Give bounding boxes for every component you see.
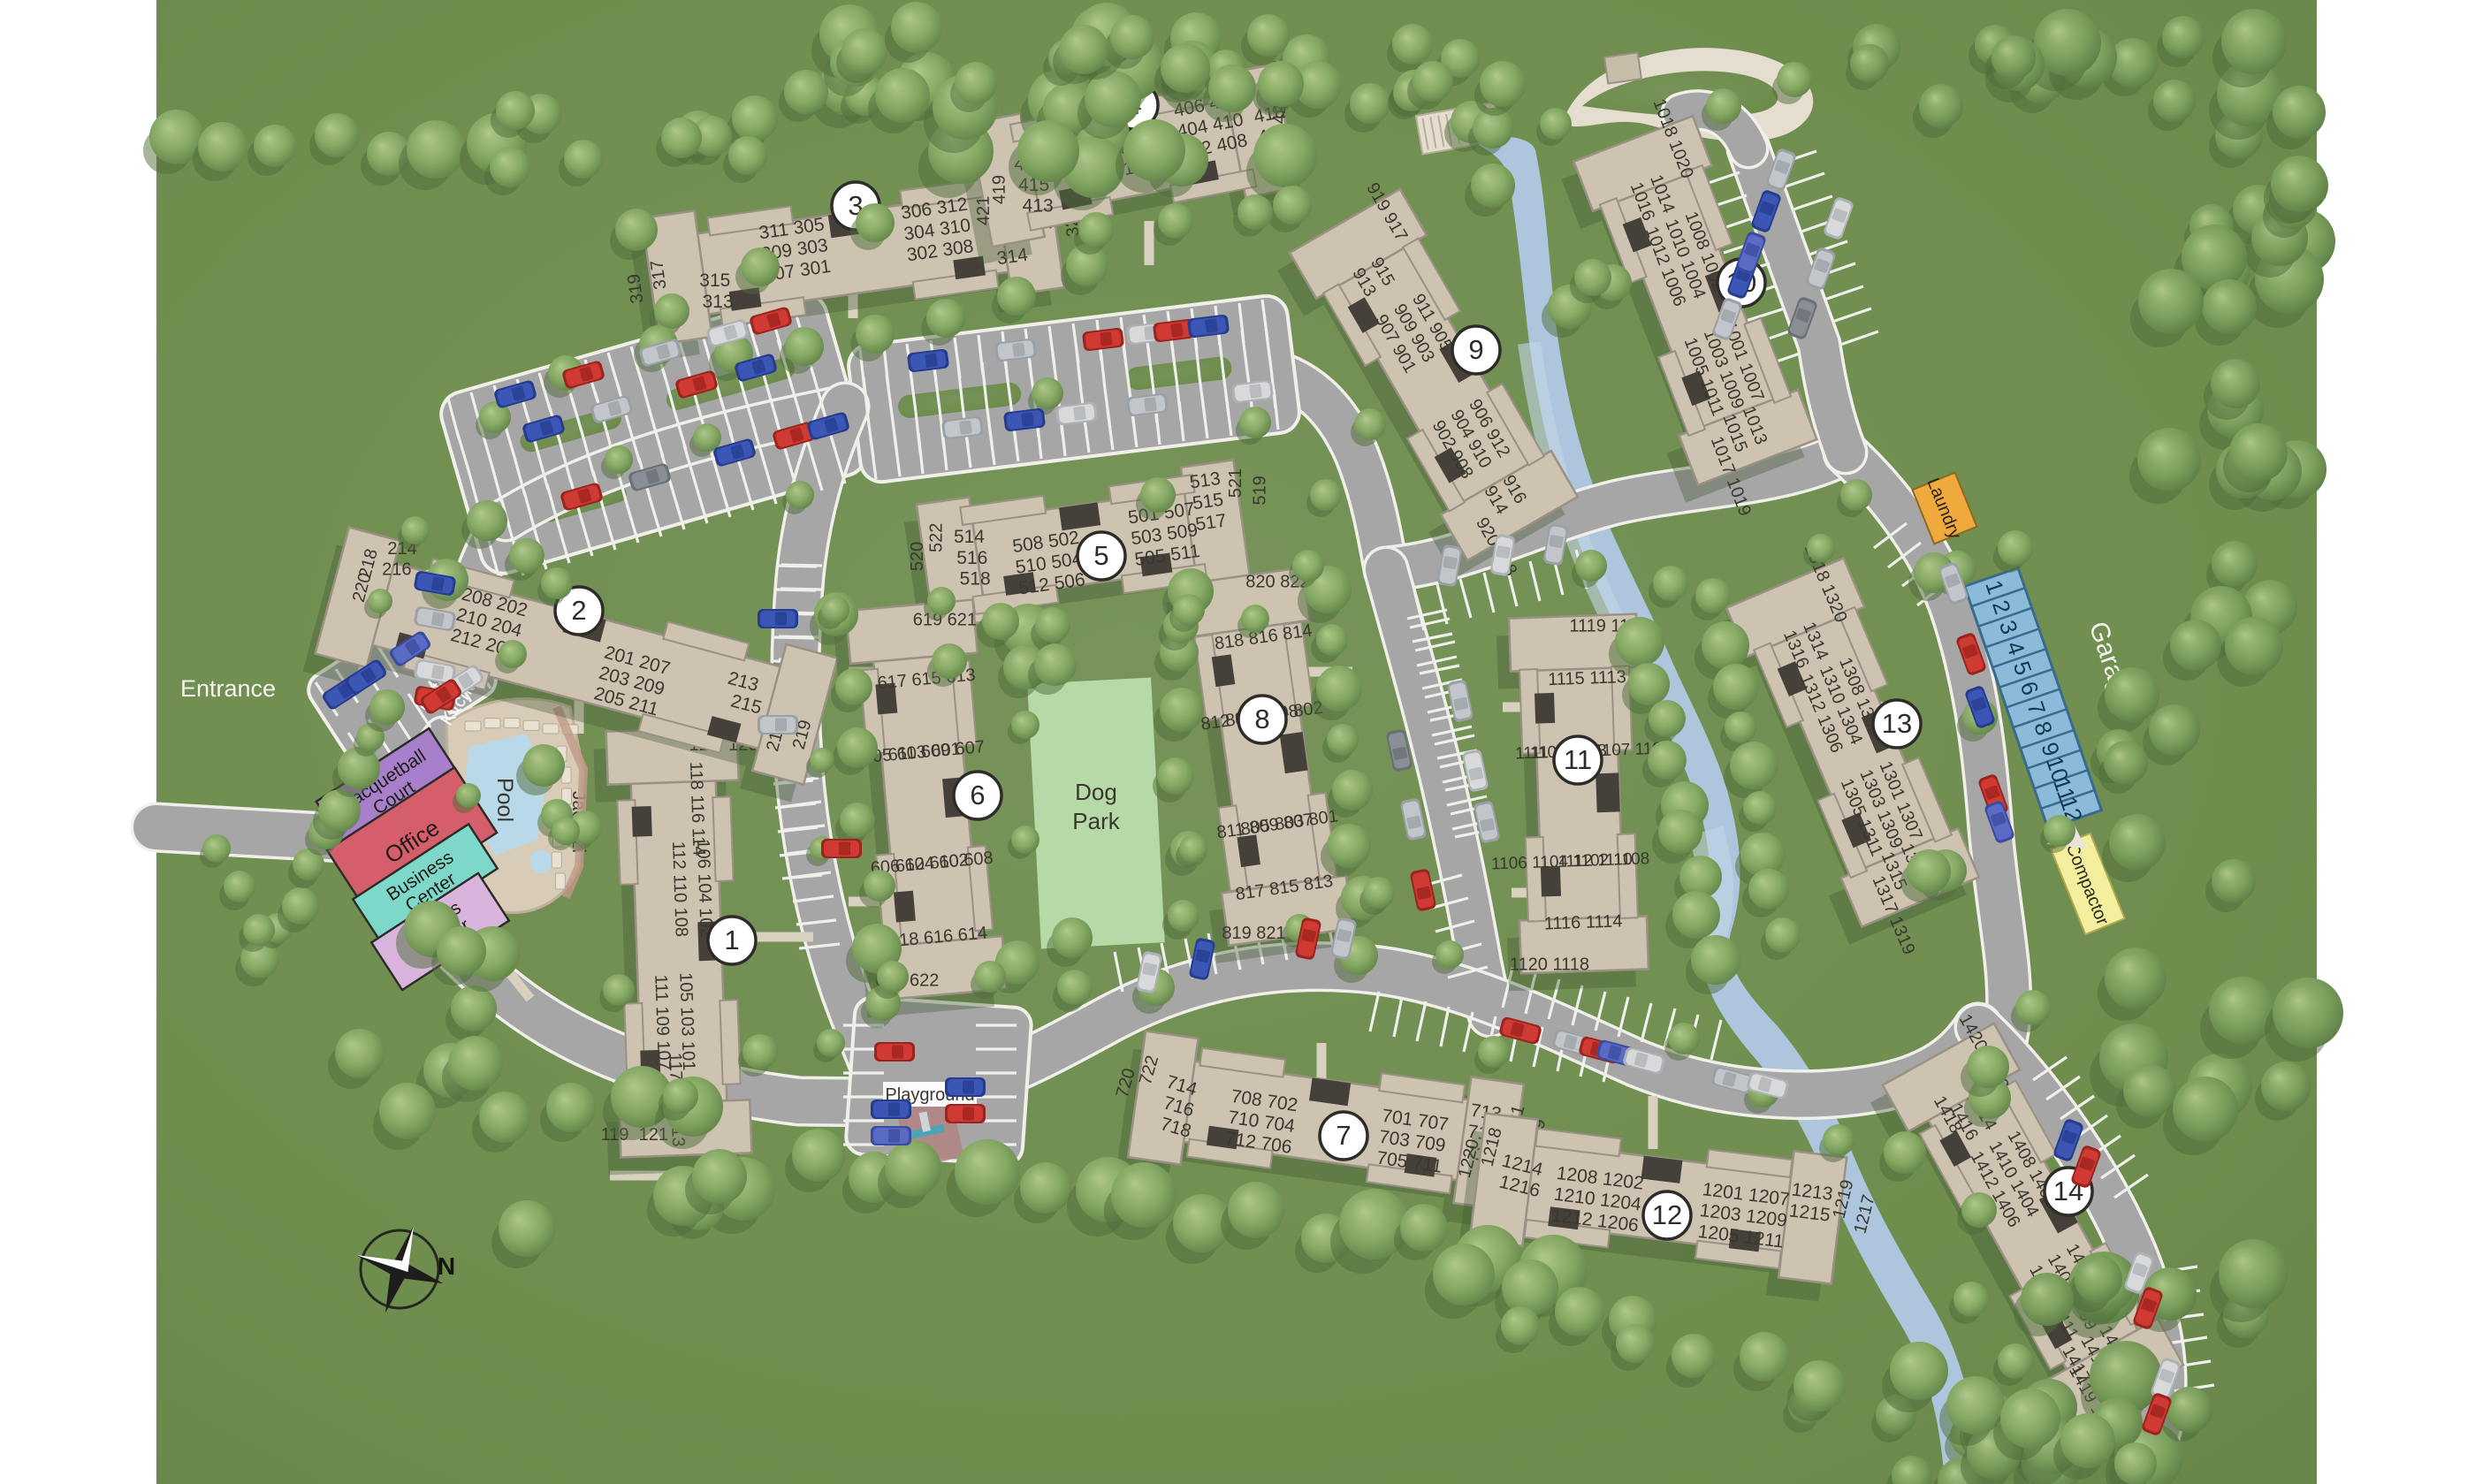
svg-text:Dog: Dog (1075, 779, 1117, 805)
svg-text:421: 421 (974, 195, 994, 225)
svg-text:313: 313 (703, 292, 734, 312)
svg-text:106 104 102: 106 104 102 (693, 839, 716, 938)
svg-text:2: 2 (571, 595, 586, 626)
svg-text:1120 1118: 1120 1118 (1510, 955, 1589, 974)
svg-text:413: 413 (1023, 196, 1054, 217)
svg-text:317: 317 (647, 259, 670, 291)
svg-text:N: N (438, 1252, 455, 1280)
svg-text:13: 13 (1882, 708, 1912, 739)
svg-text:520: 520 (908, 542, 927, 571)
svg-text:515: 515 (1192, 490, 1225, 514)
svg-text:7: 7 (1336, 1120, 1351, 1151)
svg-text:315: 315 (699, 270, 730, 291)
svg-text:513: 513 (1188, 468, 1222, 493)
svg-text:517: 517 (1194, 510, 1228, 535)
svg-text:216: 216 (382, 559, 411, 579)
svg-text:516: 516 (956, 548, 987, 568)
svg-text:521: 521 (1226, 468, 1245, 498)
svg-text:1: 1 (724, 925, 739, 955)
svg-text:522: 522 (926, 523, 946, 552)
svg-text:819 821: 819 821 (1222, 924, 1285, 943)
svg-text:9: 9 (1468, 334, 1483, 365)
svg-text:12: 12 (1652, 1199, 1682, 1230)
svg-text:1116 1114: 1116 1114 (1543, 911, 1622, 933)
svg-text:1115 1113: 1115 1113 (1548, 667, 1626, 689)
svg-text:319: 319 (624, 273, 647, 305)
svg-text:518: 518 (960, 569, 991, 590)
svg-text:8: 8 (1254, 704, 1269, 734)
svg-text:112 110 108: 112 110 108 (668, 841, 691, 937)
svg-text:6: 6 (970, 780, 985, 810)
svg-text:519: 519 (1250, 476, 1269, 505)
svg-text:11: 11 (1564, 744, 1592, 775)
svg-text:5: 5 (1093, 540, 1108, 571)
svg-text:Pool: Pool (492, 778, 517, 822)
svg-text:514: 514 (954, 527, 985, 547)
svg-text:Park: Park (1072, 808, 1120, 834)
svg-text:Entrance: Entrance (180, 675, 276, 702)
svg-text:1112 1110: 1112 1110 (1557, 850, 1633, 871)
